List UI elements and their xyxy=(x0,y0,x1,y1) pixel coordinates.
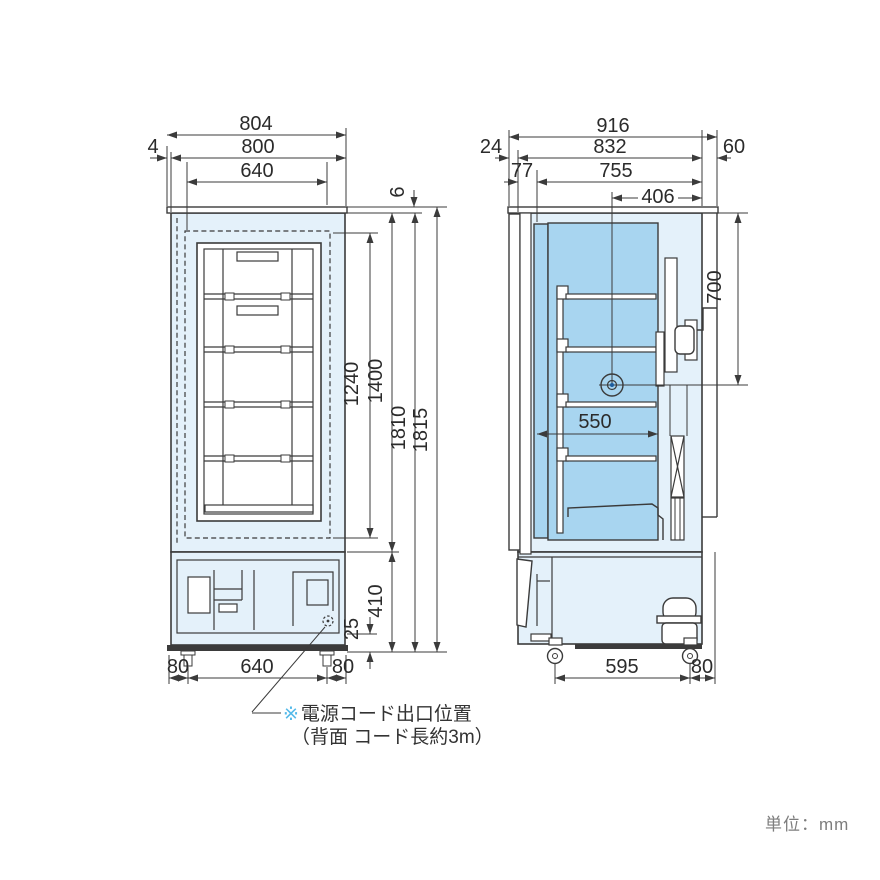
dim-front-width-door: 640 xyxy=(240,160,273,182)
dim-front-foot-span: 640 xyxy=(240,656,273,678)
front-base-frame xyxy=(167,645,348,651)
dim-front-height-inner: 1240 xyxy=(341,362,363,407)
unit-label: 単位：mm xyxy=(765,815,849,834)
note-line2: （背面 コード長約3m） xyxy=(291,726,494,748)
side-view xyxy=(508,192,748,664)
front-door-window xyxy=(197,243,321,521)
dim-front-offset-left: 4 xyxy=(147,136,158,158)
dim-side-door-thickness: 77 xyxy=(511,160,533,182)
front-view xyxy=(167,207,348,666)
dim-front-foot-right: 80 xyxy=(332,656,354,678)
refrigerator-dimension-drawing: 804 800 640 4 6 1240 1400 1810 1815 410 … xyxy=(0,0,880,880)
dim-front-width-body: 800 xyxy=(241,136,274,158)
dimension-drawing-page: 804 800 640 4 6 1240 1400 1810 1815 410 … xyxy=(0,0,880,880)
dim-front-base-clearance: 25 xyxy=(341,618,363,640)
dim-side-caster-rear: 80 xyxy=(691,656,713,678)
dim-side-port-from-top: 700 xyxy=(704,270,726,303)
dim-side-caster-span: 595 xyxy=(605,656,638,678)
side-chamber xyxy=(548,223,658,540)
dim-side-offset-front: 24 xyxy=(480,136,502,158)
dim-front-height-total: 1815 xyxy=(410,408,432,453)
dim-side-shelf-depth: 550 xyxy=(578,411,611,433)
compressor xyxy=(657,598,701,644)
dim-side-offset-rear: 60 xyxy=(723,136,745,158)
side-door xyxy=(509,213,548,554)
side-fan-unit xyxy=(671,436,684,540)
front-machine-compartment xyxy=(171,552,345,645)
dim-side-depth-total: 916 xyxy=(596,115,629,137)
dim-side-depth-inner: 755 xyxy=(599,160,632,182)
dim-side-depth-body: 832 xyxy=(593,136,626,158)
dim-front-height-body: 1810 xyxy=(388,406,410,451)
dim-front-height-machine: 410 xyxy=(365,584,387,617)
dim-front-top-lip: 6 xyxy=(387,186,409,197)
front-top-plate xyxy=(167,207,347,213)
dim-front-height-door: 1400 xyxy=(365,359,387,404)
dim-side-port-from-rear: 406 xyxy=(641,186,674,208)
dim-front-foot-left: 80 xyxy=(167,656,189,678)
note-marker: ※ xyxy=(283,704,299,725)
dim-front-width-outer: 804 xyxy=(239,113,272,135)
cord-outlet-box xyxy=(675,326,694,354)
note-line1: ※電源コード出口位置 xyxy=(283,703,472,725)
side-top-plate xyxy=(508,207,718,213)
